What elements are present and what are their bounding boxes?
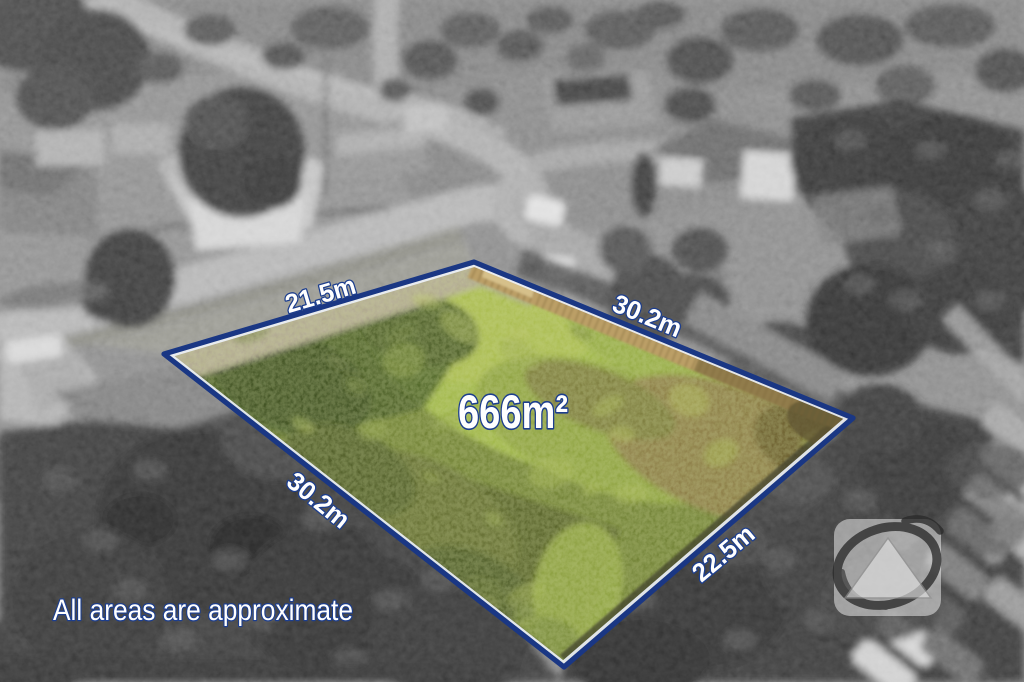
svg-text:All areas are approximate: All areas are approximate xyxy=(53,594,353,627)
svg-text:666m²: 666m² xyxy=(458,385,568,438)
